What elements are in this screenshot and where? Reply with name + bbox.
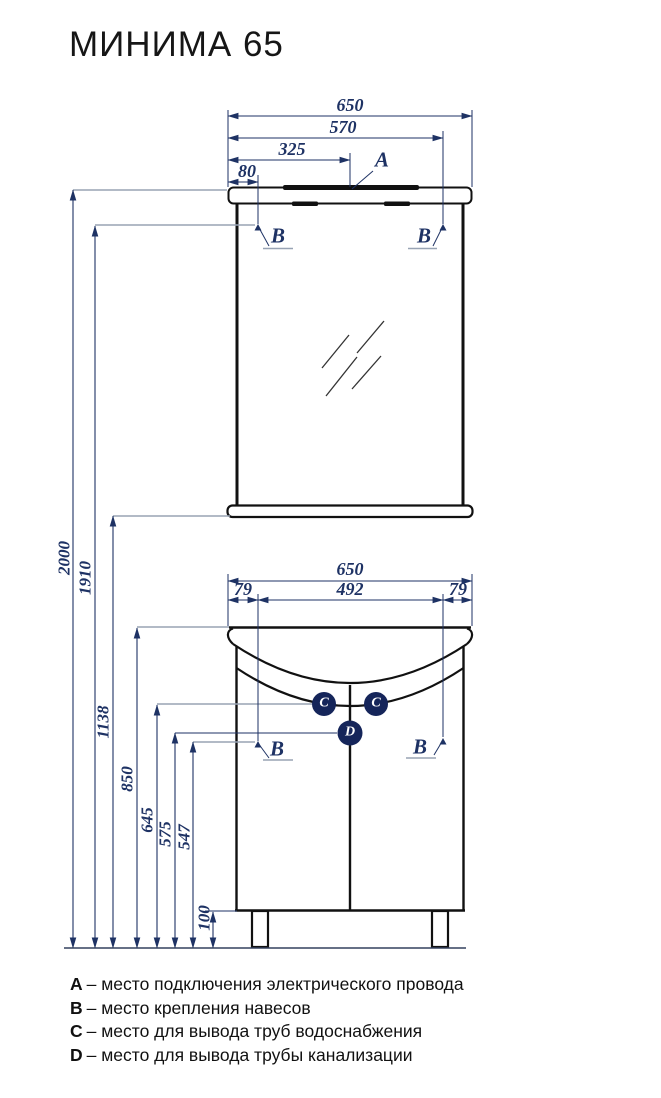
mirror-glass-hatching — [322, 321, 384, 396]
legend-key-b: B — [70, 998, 83, 1018]
legend-key-c: C — [70, 1021, 83, 1041]
legend-item-a: A– место подключения электрического пров… — [70, 973, 464, 997]
marker-b-lower-right: B — [413, 737, 427, 758]
marker-a-label: A — [375, 150, 389, 171]
legend-key-d: D — [70, 1045, 83, 1065]
dim-height-645: 645 — [139, 807, 156, 833]
spec-sheet: МИНИМА 65 — [0, 0, 661, 1098]
dim-height-850: 850 — [119, 766, 136, 792]
legend: A– место подключения электрического пров… — [70, 973, 464, 1067]
marker-b-upper-left: B — [271, 226, 285, 247]
legend-text-c: – место для вывода труб водоснабжения — [87, 1021, 423, 1041]
marker-c-right-label: C — [371, 696, 380, 710]
dim-height-1138: 1138 — [95, 705, 112, 738]
dim-vanity-650: 650 — [337, 560, 364, 578]
marker-b-upper-right: B — [417, 226, 431, 247]
dim-mirror-80: 80 — [238, 162, 256, 180]
marker-b-lower-left: B — [270, 739, 284, 760]
leader-lines — [73, 190, 437, 760]
vanity-cabinet-outline — [228, 628, 472, 948]
dim-height-547: 547 — [176, 824, 193, 850]
dim-height-2000: 2000 — [56, 541, 73, 575]
legend-text-b: – место крепления навесов — [87, 998, 311, 1018]
dim-height-100: 100 — [196, 905, 213, 931]
legend-text-d: – место для вывода трубы канализации — [87, 1045, 413, 1065]
legend-item-b: B– место крепления навесов — [70, 997, 464, 1021]
dim-mirror-570: 570 — [330, 118, 357, 136]
dim-vanity-492: 492 — [337, 580, 364, 598]
dim-mirror-650: 650 — [337, 96, 364, 114]
marker-d-label: D — [345, 725, 355, 739]
legend-item-d: D– место для вывода трубы канализации — [70, 1044, 464, 1068]
dim-mirror-325: 325 — [279, 140, 306, 158]
legend-text-a: – место подключения электрического прово… — [87, 974, 464, 994]
technical-drawing-canvas — [0, 0, 661, 1098]
dim-height-575: 575 — [157, 821, 174, 847]
marker-c-left-label: C — [319, 696, 328, 710]
legend-item-c: C– место для вывода труб водоснабжения — [70, 1020, 464, 1044]
dim-vanity-79-right: 79 — [449, 580, 467, 598]
legend-key-a: A — [70, 974, 83, 994]
dim-vanity-79-left: 79 — [234, 580, 252, 598]
dim-height-1910: 1910 — [77, 561, 94, 595]
mirror-cabinet-outline — [228, 185, 473, 517]
